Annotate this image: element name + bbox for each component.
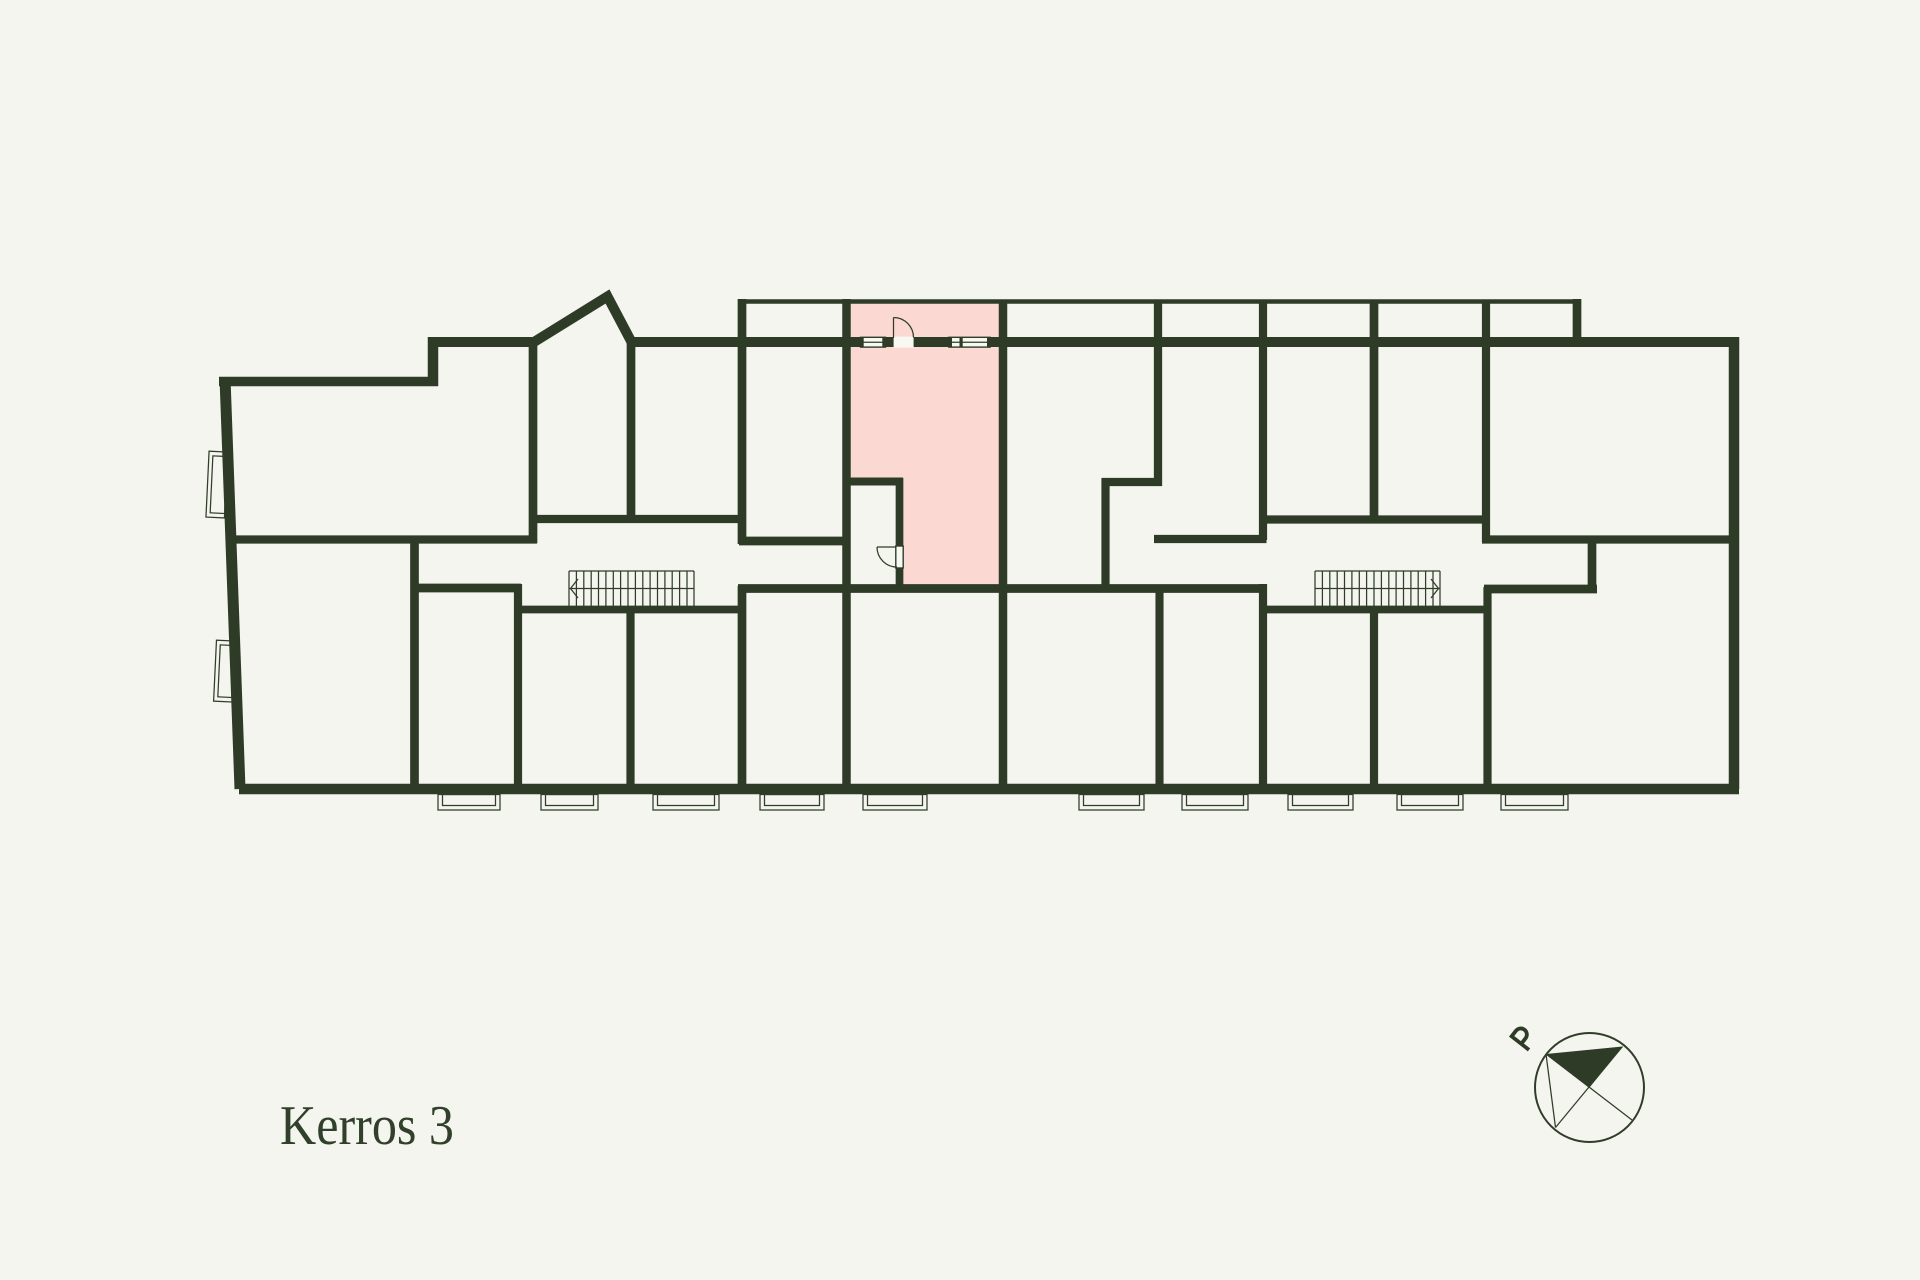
svg-text:Kerros 3: Kerros 3 (280, 1095, 454, 1157)
